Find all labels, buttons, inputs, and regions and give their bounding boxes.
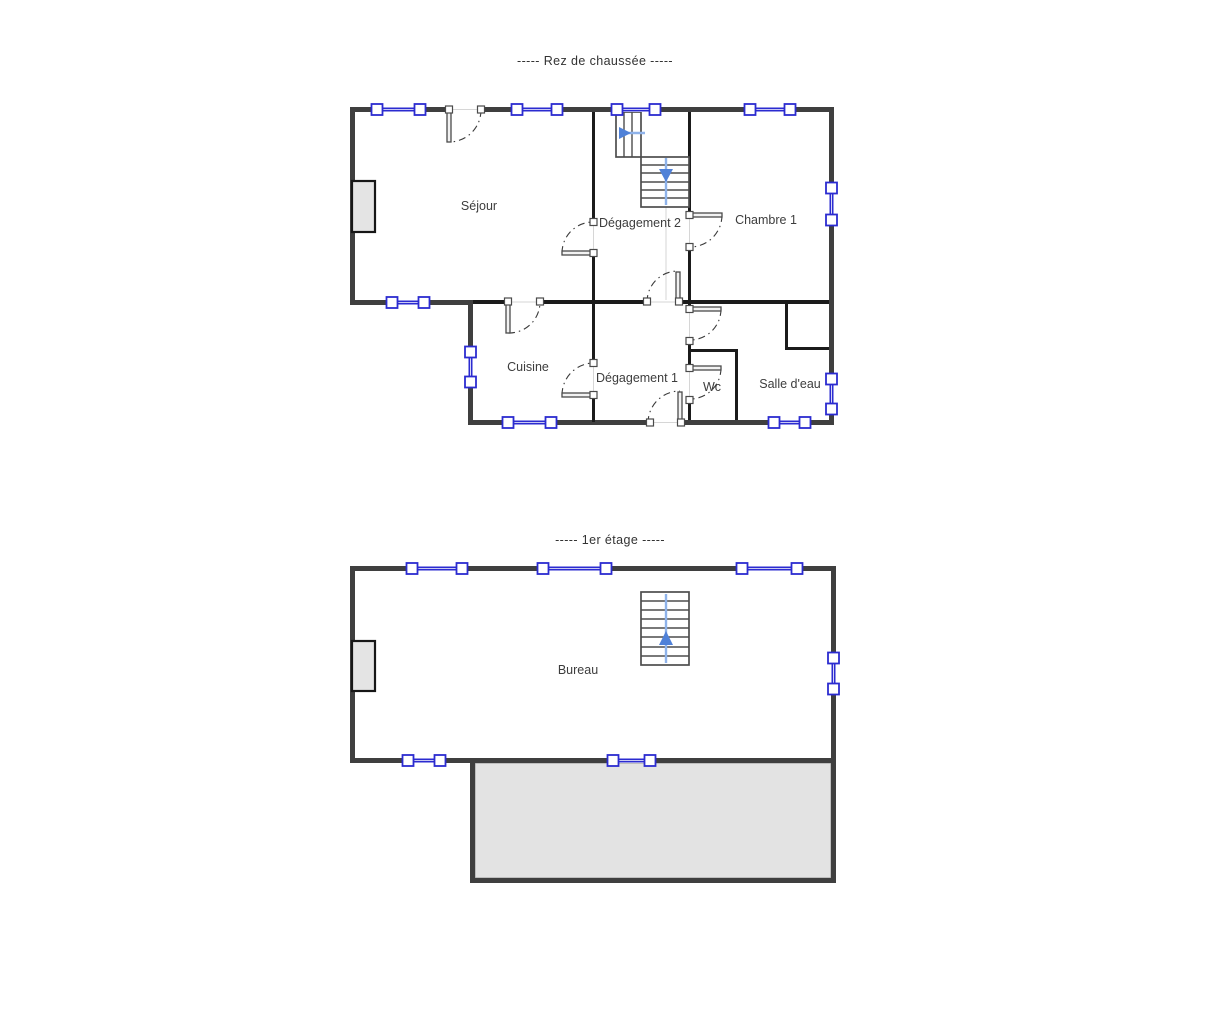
- door-jamb-handle[interactable]: [686, 306, 693, 313]
- window-handle[interactable]: [826, 374, 837, 385]
- chimney[interactable]: [352, 641, 375, 691]
- door-jamb-handle[interactable]: [686, 338, 693, 345]
- wall-terrace-west[interactable]: [470, 758, 475, 883]
- door-jamb-handle[interactable]: [446, 106, 453, 113]
- floor-title-rdc: ----- Rez de chaussée -----: [517, 54, 673, 68]
- window-handle[interactable]: [745, 104, 756, 115]
- window-chambre1-east[interactable]: [826, 183, 837, 226]
- window-sejour-north-2[interactable]: [512, 104, 563, 115]
- wall-corridor-east[interactable]: [688, 247, 691, 307]
- window-chambre1-north[interactable]: [745, 104, 796, 115]
- window-handle[interactable]: [465, 347, 476, 358]
- window-handle[interactable]: [546, 417, 557, 428]
- door-jamb-handle[interactable]: [676, 298, 683, 305]
- door-swing-arc: [562, 222, 593, 253]
- window-handle[interactable]: [612, 104, 623, 115]
- window-salledeau-south[interactable]: [769, 417, 811, 428]
- wall-corridor-west[interactable]: [592, 253, 595, 363]
- room-label-salledeau: Salle d'eau: [759, 377, 821, 391]
- door-leaf[interactable]: [691, 366, 721, 370]
- door-degagement1-salledeau[interactable]: [686, 306, 721, 345]
- staircase-etage[interactable]: [641, 592, 689, 665]
- door-jamb-handle[interactable]: [590, 392, 597, 399]
- wall-corridor-west[interactable]: [592, 112, 595, 222]
- window-handle[interactable]: [828, 684, 839, 695]
- door-swing-arc: [508, 302, 540, 333]
- window-bureau-north-3[interactable]: [737, 563, 803, 574]
- window-handle[interactable]: [503, 417, 514, 428]
- first-floor-plan: Bureau: [350, 563, 839, 883]
- window-handle[interactable]: [419, 297, 430, 308]
- window-bureau-south-1[interactable]: [403, 755, 446, 766]
- window-handle[interactable]: [737, 563, 748, 574]
- chimney[interactable]: [352, 181, 375, 232]
- door-swing-arc: [648, 391, 680, 423]
- window-cuisine-west[interactable]: [465, 347, 476, 388]
- window-handle[interactable]: [608, 755, 619, 766]
- window-bureau-north-1[interactable]: [407, 563, 468, 574]
- terrace-area[interactable]: [475, 763, 831, 878]
- door-leaf[interactable]: [562, 251, 593, 255]
- window-sejour-north-1[interactable]: [372, 104, 426, 115]
- window-handle[interactable]: [465, 377, 476, 388]
- room-label-chambre1: Chambre 1: [735, 213, 797, 227]
- door-jamb-handle[interactable]: [505, 298, 512, 305]
- floor-title-etage1: ----- 1er étage -----: [555, 533, 665, 547]
- door-entrance-degagement1[interactable]: [647, 391, 685, 426]
- ground-floor-plan: Séjour Dégagement 2 Chambre 1 Cuisine Dé…: [350, 104, 837, 428]
- room-label-degagement2: Dégagement 2: [599, 216, 681, 230]
- window-handle[interactable]: [601, 563, 612, 574]
- door-jamb-handle[interactable]: [686, 244, 693, 251]
- wall-mid-horizontal[interactable]: [679, 300, 829, 304]
- door-swing-arc: [690, 309, 721, 340]
- room-label-cuisine: Cuisine: [507, 360, 549, 374]
- window-handle[interactable]: [372, 104, 383, 115]
- door-cuisine-degagement1[interactable]: [562, 360, 597, 399]
- wall-closet-south[interactable]: [785, 347, 829, 350]
- wall-wc-north[interactable]: [691, 349, 738, 352]
- door-jamb-handle[interactable]: [647, 419, 654, 426]
- wall-mid-horizontal[interactable]: [540, 300, 647, 304]
- wall-mid-horizontal[interactable]: [473, 300, 508, 304]
- floorplan-canvas: ----- Rez de chaussée -----: [0, 0, 1210, 1028]
- window-handle[interactable]: [552, 104, 563, 115]
- window-handle[interactable]: [407, 563, 418, 574]
- door-sejour-cuisine[interactable]: [505, 298, 544, 333]
- window-handle[interactable]: [435, 755, 446, 766]
- window-cuisine-south[interactable]: [503, 417, 557, 428]
- door-jamb-handle[interactable]: [644, 298, 651, 305]
- wall-terrace-south[interactable]: [470, 878, 836, 883]
- room-label-wc: Wc: [703, 380, 721, 394]
- window-sejour-south[interactable]: [387, 297, 430, 308]
- window-bureau-east[interactable]: [828, 653, 839, 695]
- window-handle[interactable]: [800, 417, 811, 428]
- window-handle[interactable]: [785, 104, 796, 115]
- window-handle[interactable]: [826, 215, 837, 226]
- window-salledeau-east[interactable]: [826, 374, 837, 415]
- window-handle[interactable]: [792, 563, 803, 574]
- door-leaf[interactable]: [506, 304, 510, 333]
- door-entrance-sejour[interactable]: [446, 106, 485, 142]
- door-swing-arc: [449, 110, 481, 142]
- room-label-sejour: Séjour: [461, 199, 497, 213]
- window-handle[interactable]: [650, 104, 661, 115]
- door-swing-arc: [562, 363, 593, 395]
- door-leaf[interactable]: [447, 112, 451, 142]
- window-handle[interactable]: [538, 563, 549, 574]
- door-swing-arc: [647, 271, 678, 302]
- door-jamb-handle[interactable]: [537, 298, 544, 305]
- window-bureau-north-2[interactable]: [538, 563, 612, 574]
- door-jamb-handle[interactable]: [590, 360, 597, 367]
- wall-wc-east[interactable]: [735, 349, 738, 420]
- door-jamb-handle[interactable]: [678, 419, 685, 426]
- window-handle[interactable]: [403, 755, 414, 766]
- window-handle[interactable]: [645, 755, 656, 766]
- door-degagement2-chambre1[interactable]: [686, 212, 722, 251]
- door-jamb-handle[interactable]: [686, 397, 693, 404]
- door-jamb-handle[interactable]: [590, 219, 597, 226]
- room-label-degagement1: Dégagement 1: [596, 371, 678, 385]
- door-jamb-handle[interactable]: [590, 250, 597, 257]
- window-handle[interactable]: [512, 104, 523, 115]
- window-handle[interactable]: [826, 404, 837, 415]
- door-leaf[interactable]: [678, 392, 682, 422]
- window-handle[interactable]: [457, 563, 468, 574]
- window-handle[interactable]: [387, 297, 398, 308]
- window-handle[interactable]: [828, 653, 839, 664]
- room-label-bureau: Bureau: [558, 663, 598, 677]
- door-jamb-handle[interactable]: [686, 365, 693, 372]
- door-jamb-handle[interactable]: [478, 106, 485, 113]
- door-jamb-handle[interactable]: [686, 212, 693, 219]
- door-swing-arc: [690, 215, 722, 247]
- wall-right[interactable]: [831, 566, 836, 883]
- window-handle[interactable]: [826, 183, 837, 194]
- window-handle[interactable]: [769, 417, 780, 428]
- door-leaf[interactable]: [562, 393, 593, 397]
- door-leaf[interactable]: [691, 307, 721, 311]
- door-leaf[interactable]: [691, 213, 722, 217]
- door-degagement2-degagement1[interactable]: [644, 271, 683, 305]
- wall-closet-west[interactable]: [785, 303, 788, 350]
- window-handle[interactable]: [415, 104, 426, 115]
- door-sejour-degagement2[interactable]: [562, 219, 597, 257]
